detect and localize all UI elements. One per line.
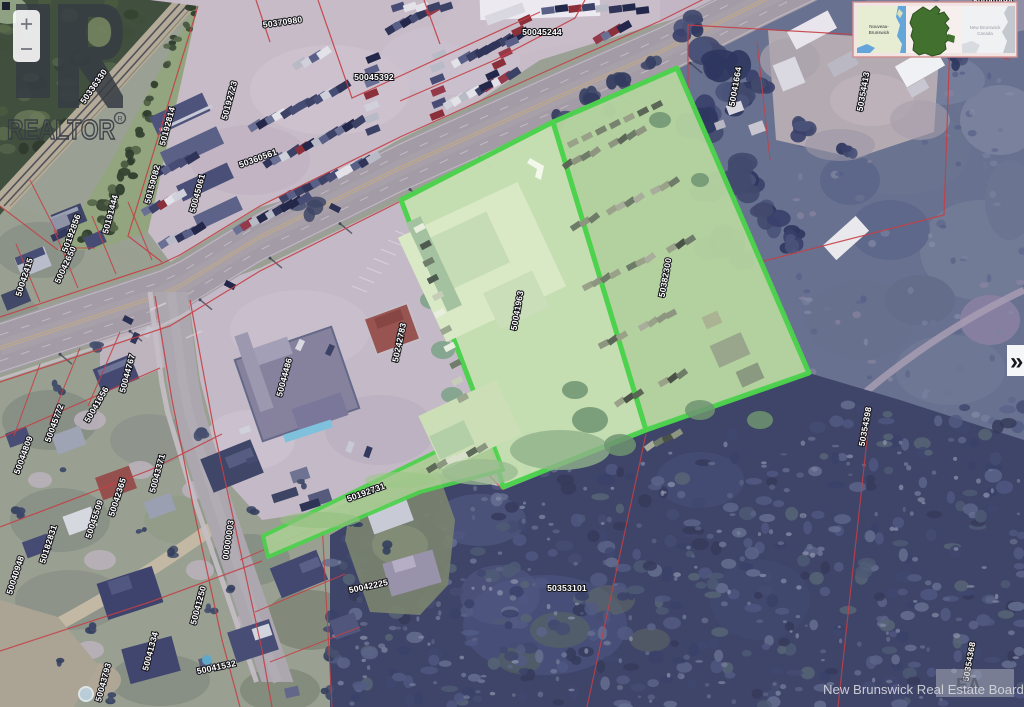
svg-text:50045244: 50045244	[522, 27, 562, 37]
svg-text:REALTOR: REALTOR	[7, 114, 115, 145]
svg-text:R: R	[117, 116, 122, 123]
svg-text:Canada: Canada	[977, 31, 993, 36]
svg-text:New Brunswick: New Brunswick	[970, 25, 1002, 30]
svg-text:New Brunswick Real Estate Boar: New Brunswick Real Estate Board	[823, 682, 1024, 697]
svg-text:»: »	[1010, 348, 1023, 375]
svg-text:50045392: 50045392	[354, 72, 394, 82]
svg-text:Nouveau-: Nouveau-	[869, 24, 889, 29]
svg-text:50353101: 50353101	[547, 583, 587, 593]
svg-text:Brunswick: Brunswick	[869, 30, 890, 35]
